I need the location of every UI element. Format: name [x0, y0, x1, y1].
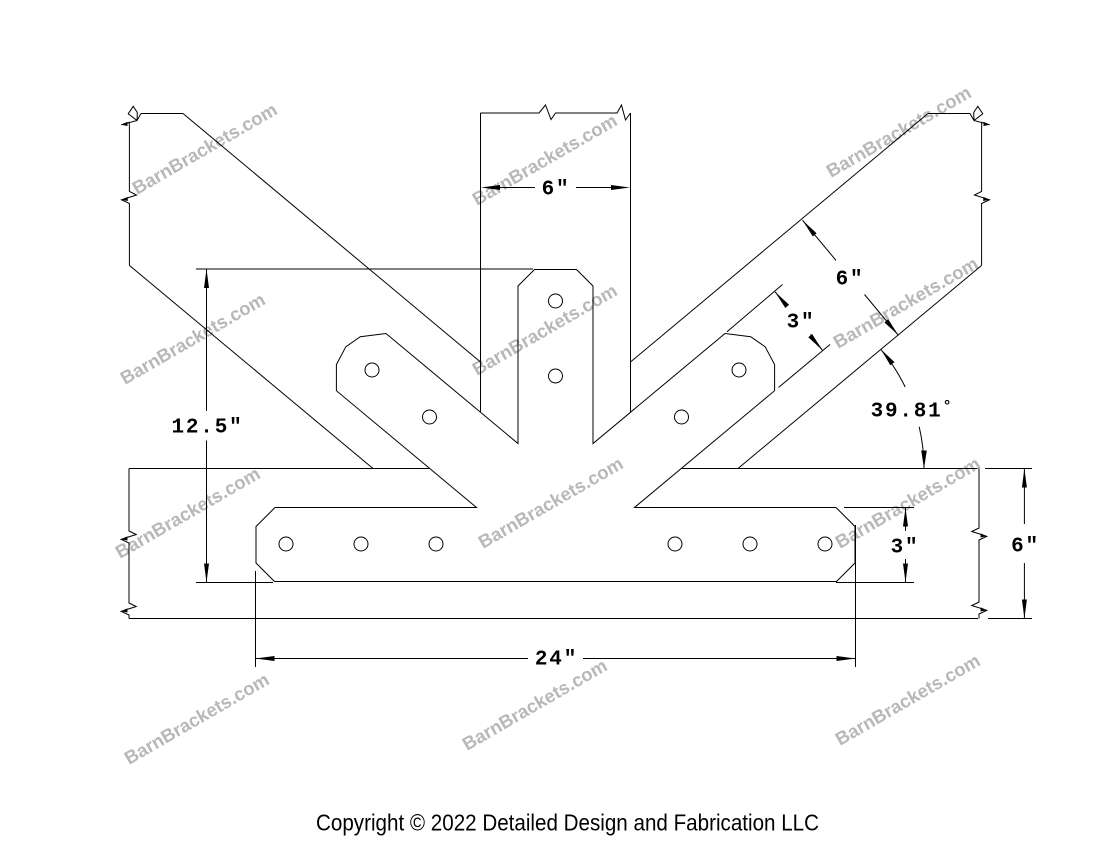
svg-text:3": 3" [891, 536, 920, 559]
svg-text:24": 24" [535, 649, 578, 672]
svg-text:39.81°: 39.81° [871, 399, 954, 424]
svg-text:6": 6" [836, 269, 865, 292]
svg-text:6": 6" [542, 179, 571, 202]
svg-text:12.5": 12.5" [171, 417, 243, 440]
svg-text:6": 6" [1011, 535, 1040, 558]
svg-text:Copyright © 2022 Detailed Desi: Copyright © 2022 Detailed Design and Fab… [316, 810, 819, 836]
svg-text:3": 3" [787, 312, 816, 335]
